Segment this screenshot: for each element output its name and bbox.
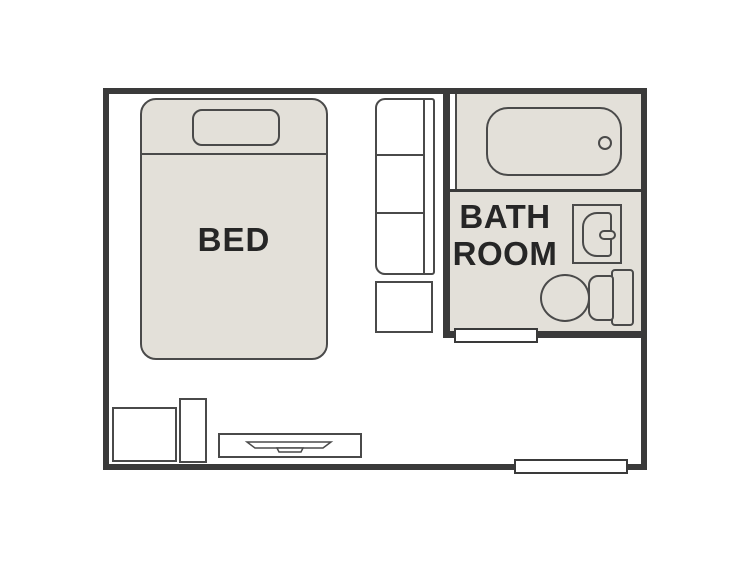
bathroom-door-opening bbox=[454, 328, 538, 343]
floorplan-canvas: BATH ROOM BED bbox=[0, 0, 750, 563]
entrance-door-opening bbox=[514, 459, 628, 474]
outer-wall bbox=[103, 88, 647, 470]
